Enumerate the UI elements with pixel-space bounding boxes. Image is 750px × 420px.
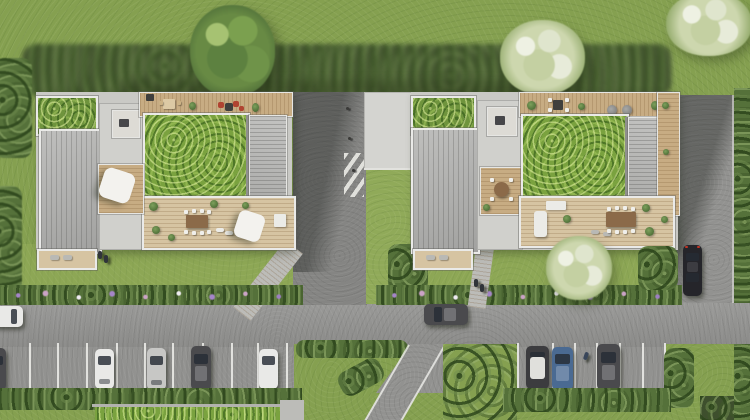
fire-table bbox=[225, 103, 233, 111]
deck-chair bbox=[565, 108, 569, 112]
dining-chair bbox=[615, 230, 619, 234]
deck-lounger bbox=[50, 255, 59, 260]
left-skylight bbox=[119, 119, 129, 127]
parking-stall-line bbox=[231, 343, 233, 391]
deck-lounger bbox=[426, 255, 435, 260]
deck-chair bbox=[548, 108, 552, 112]
parked-car-black bbox=[683, 245, 702, 296]
parked-car-white bbox=[259, 349, 278, 389]
car-windshield bbox=[150, 356, 163, 365]
flower-bed-east bbox=[376, 285, 682, 305]
sun-lounger bbox=[216, 228, 224, 232]
parked-car-white bbox=[95, 349, 114, 389]
entry-plaza bbox=[364, 92, 412, 170]
dining-chair bbox=[200, 231, 204, 235]
car-windshield bbox=[11, 309, 17, 324]
parking-stall-line bbox=[172, 343, 174, 391]
dining-table bbox=[606, 212, 636, 227]
car-windshield bbox=[530, 352, 545, 357]
red-lounge-chair bbox=[233, 101, 239, 107]
parking-stall-line bbox=[57, 343, 59, 391]
potted-plant bbox=[527, 101, 536, 110]
red-lounge-chair bbox=[239, 106, 244, 111]
car-rear-window bbox=[99, 379, 110, 384]
dining-chair bbox=[200, 209, 204, 213]
parked-car-dark-partial bbox=[0, 348, 6, 390]
potted-plant bbox=[252, 103, 259, 112]
parked-car-silver bbox=[147, 348, 166, 390]
dining-chair bbox=[509, 178, 513, 182]
hedge-row-mid bbox=[503, 388, 671, 412]
moving-car-dark bbox=[424, 304, 468, 325]
balcony-plant bbox=[662, 102, 669, 109]
parking-stall-line bbox=[642, 343, 644, 390]
blossom-tree-top-center bbox=[500, 20, 585, 95]
right-edge-hedge-south bbox=[734, 344, 750, 420]
taillight bbox=[685, 246, 688, 248]
car-windshield bbox=[555, 354, 570, 364]
dining-chair bbox=[184, 210, 188, 214]
dining-chair bbox=[192, 209, 196, 213]
dining-chair bbox=[607, 207, 611, 211]
lower-path-sliver bbox=[280, 400, 304, 420]
terrace-plant bbox=[149, 202, 158, 211]
right-garden-shrubs bbox=[638, 246, 678, 290]
crosswalk bbox=[344, 153, 364, 197]
terrace-plant bbox=[645, 227, 654, 236]
courtyard-plant bbox=[483, 204, 490, 211]
dining-chair bbox=[490, 178, 494, 182]
dining-chair bbox=[631, 207, 635, 211]
car-windshield bbox=[434, 307, 442, 322]
dark-table bbox=[553, 100, 563, 110]
left-metal-roof bbox=[39, 129, 102, 254]
car-windshield bbox=[98, 356, 111, 365]
deck-chair bbox=[565, 98, 569, 102]
left-ground-deck bbox=[37, 249, 97, 270]
left-edge-shrubs-top bbox=[0, 58, 32, 158]
parked-car-blue bbox=[552, 347, 573, 390]
car-rear-window bbox=[686, 253, 699, 261]
left-edge-shrubs-bottom bbox=[0, 186, 22, 294]
blossom-tree-south-lawn bbox=[546, 236, 612, 300]
dining-chair bbox=[207, 210, 211, 214]
terrace-plant bbox=[210, 200, 218, 208]
car-windshield bbox=[194, 354, 208, 364]
dining-chair bbox=[623, 230, 627, 234]
dining-chair bbox=[207, 230, 211, 234]
island-shrub-row bbox=[296, 340, 408, 358]
car-roof bbox=[602, 365, 615, 380]
flower-bed-west bbox=[0, 285, 303, 305]
bar-counter bbox=[274, 214, 286, 227]
deck-lounger bbox=[63, 255, 72, 260]
terrace-plant bbox=[242, 202, 249, 209]
car-windshield bbox=[601, 352, 616, 363]
parked-car-whiteroof bbox=[526, 346, 549, 389]
left-green-roof-main bbox=[143, 113, 250, 200]
car-windshield bbox=[0, 356, 3, 365]
dining-chair bbox=[192, 231, 196, 235]
right-hedge bbox=[734, 88, 750, 304]
spa-loungers bbox=[534, 211, 547, 237]
courtyard-deck bbox=[480, 167, 524, 215]
car-rear-window bbox=[151, 380, 162, 385]
bar-counter bbox=[546, 201, 566, 210]
taillight bbox=[697, 246, 700, 248]
car-roof bbox=[687, 262, 698, 272]
car-roof bbox=[444, 308, 456, 321]
moving-car-white bbox=[0, 306, 23, 327]
pedestrian bbox=[480, 284, 484, 292]
light-bollard bbox=[348, 137, 351, 140]
car-windshield bbox=[686, 273, 699, 282]
car-roof bbox=[195, 366, 207, 381]
aerial-site-plan bbox=[0, 0, 750, 420]
dining-chair bbox=[184, 230, 188, 234]
sun-lounger bbox=[591, 230, 599, 234]
dining-table bbox=[186, 215, 208, 228]
car-windshield bbox=[262, 356, 275, 365]
round-table bbox=[494, 182, 509, 197]
deck-chair bbox=[548, 98, 552, 102]
parking-stall-line bbox=[517, 343, 519, 390]
parked-car-dark-gray bbox=[191, 346, 211, 390]
light-bollard bbox=[352, 169, 355, 172]
left-terrace bbox=[142, 196, 296, 250]
dining-chair bbox=[509, 197, 513, 201]
parking-stall-line bbox=[144, 343, 146, 391]
terrace-plant bbox=[661, 216, 668, 223]
parking-stall-line bbox=[116, 343, 118, 391]
light-bollard bbox=[346, 107, 349, 110]
parking-stall-line bbox=[574, 343, 576, 390]
right-skylight bbox=[495, 116, 505, 125]
deck-chair bbox=[159, 101, 163, 105]
resident bbox=[98, 251, 102, 259]
parking-stall-line bbox=[86, 343, 88, 391]
balcony-plant bbox=[663, 149, 669, 155]
red-lounge-chair bbox=[218, 102, 224, 108]
resident bbox=[104, 255, 108, 263]
blossom-tree-top-right bbox=[666, 0, 750, 56]
lower-green-roof-edge bbox=[95, 407, 285, 420]
dining-chair bbox=[615, 206, 619, 210]
parked-car-dark-gray bbox=[597, 344, 620, 390]
parking-stall-line bbox=[29, 343, 31, 391]
terrace-plant bbox=[168, 234, 175, 241]
deck-chair bbox=[177, 101, 181, 105]
right-ground-deck bbox=[413, 249, 473, 270]
dining-chair bbox=[607, 229, 611, 233]
dining-chair bbox=[623, 206, 627, 210]
car-roof bbox=[556, 366, 569, 381]
wood-dining-table bbox=[163, 99, 175, 109]
terrace-plant bbox=[642, 204, 650, 212]
deciduous-tree bbox=[190, 5, 275, 97]
parking-stall-line bbox=[286, 343, 288, 391]
terrace-plant bbox=[563, 215, 571, 223]
terrace-plant bbox=[152, 226, 160, 234]
right-green-roof-main bbox=[521, 114, 629, 201]
sun-lounger bbox=[225, 231, 233, 235]
left-ribbed-panel bbox=[249, 115, 287, 198]
pedestrian bbox=[474, 279, 478, 287]
deck-lounger bbox=[439, 255, 448, 260]
potted-plant bbox=[578, 103, 585, 110]
potted-plant bbox=[189, 102, 196, 110]
storage-box bbox=[146, 94, 154, 101]
dining-chair bbox=[490, 197, 494, 201]
dining-chair bbox=[631, 229, 635, 233]
car-roof-white bbox=[530, 357, 545, 379]
right-metal-roof bbox=[411, 128, 480, 254]
